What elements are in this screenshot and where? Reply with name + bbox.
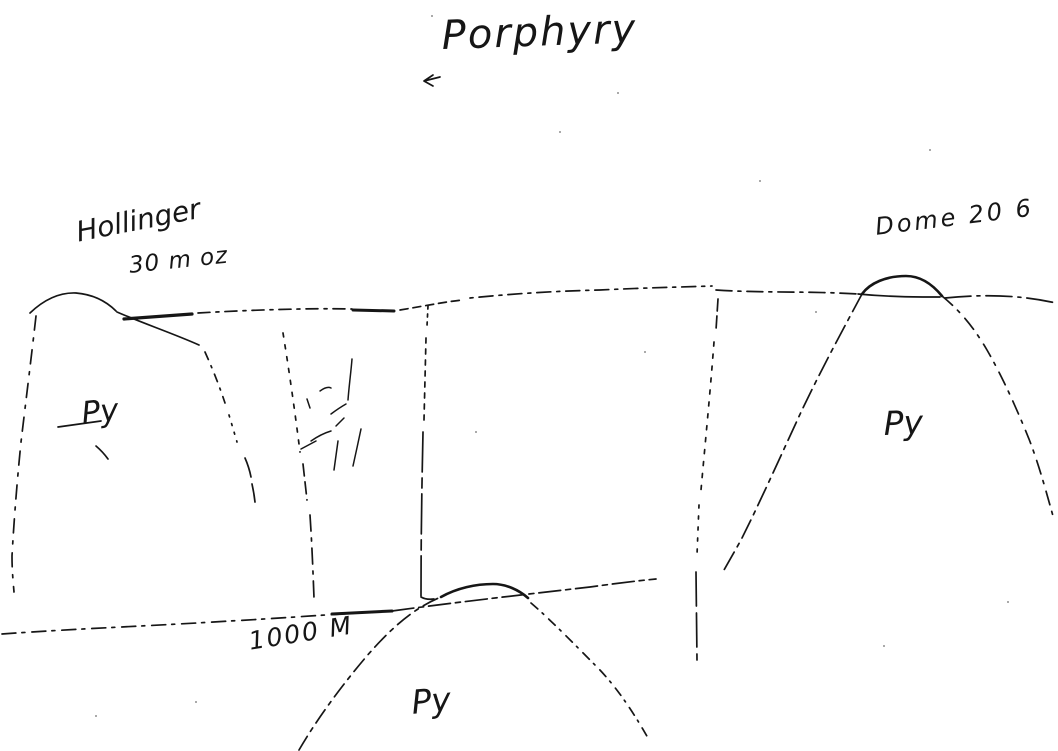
illegible-scribble xyxy=(301,359,361,470)
bottom-porphyry-dome xyxy=(299,584,648,750)
contact-a-segment xyxy=(229,415,237,442)
title-underline-arrow xyxy=(424,75,440,86)
rock-unit-label-py-bottom: Py xyxy=(410,683,452,719)
surface-segment xyxy=(198,309,352,313)
contact-b-segment xyxy=(283,333,300,452)
scribble-stroke xyxy=(301,441,316,449)
sketch-drawing xyxy=(0,0,1058,751)
right-dome-crest xyxy=(862,276,942,296)
surface-segment xyxy=(858,294,940,297)
surface-segment xyxy=(945,296,1056,303)
surface-contact-line xyxy=(30,286,1056,319)
scribble-stroke xyxy=(353,429,361,466)
scribble-stroke xyxy=(311,431,331,441)
scribble-stroke xyxy=(336,418,344,426)
divider-contact-line xyxy=(696,299,718,660)
surface-segment xyxy=(400,300,463,310)
scribble-stroke xyxy=(320,387,331,391)
scribble-stroke xyxy=(331,404,346,414)
rock-unit-label-py-right: Py xyxy=(883,406,924,440)
contact-b-segment xyxy=(310,515,314,598)
surface-segment xyxy=(353,310,394,311)
vertical-contact-segment xyxy=(421,432,423,597)
left-boundary-line xyxy=(12,316,36,592)
strokes-layer xyxy=(2,15,1056,750)
sketch-canvas: Porphyry Hollinger 30 m oz Dome 20 6 Py … xyxy=(0,0,1058,751)
vertical-contact-line xyxy=(421,306,434,599)
vertical-contact-segment xyxy=(427,306,428,326)
bottom-dome-right-flank xyxy=(531,603,648,738)
contact-a-segment xyxy=(205,352,225,403)
divider-segment xyxy=(697,505,699,555)
paper-specks xyxy=(95,15,1009,717)
vertical-contact-segment xyxy=(424,338,426,420)
sketch-title: Porphyry xyxy=(441,9,638,56)
divider-segment xyxy=(696,572,697,660)
contact-a-segment xyxy=(252,484,255,502)
rock-unit-label-py-left: Py xyxy=(80,395,120,430)
contact-a-segment xyxy=(245,458,251,477)
vertical-contact-foot xyxy=(421,597,434,599)
scribble-stroke xyxy=(334,441,338,470)
scribble-stroke xyxy=(307,399,310,408)
surface-segment xyxy=(716,290,858,294)
surface-segment xyxy=(470,286,712,298)
scribble-stroke xyxy=(348,359,352,400)
right-dome-right-flank xyxy=(942,296,1053,516)
divider-segment xyxy=(701,342,714,490)
inner-contact-line-a xyxy=(117,312,255,502)
inner-contact-line-b xyxy=(283,333,314,598)
right-dome-left-flank xyxy=(724,294,862,570)
surface-bump xyxy=(30,293,116,313)
contact-b-segment xyxy=(303,464,307,500)
divider-segment xyxy=(716,299,718,330)
